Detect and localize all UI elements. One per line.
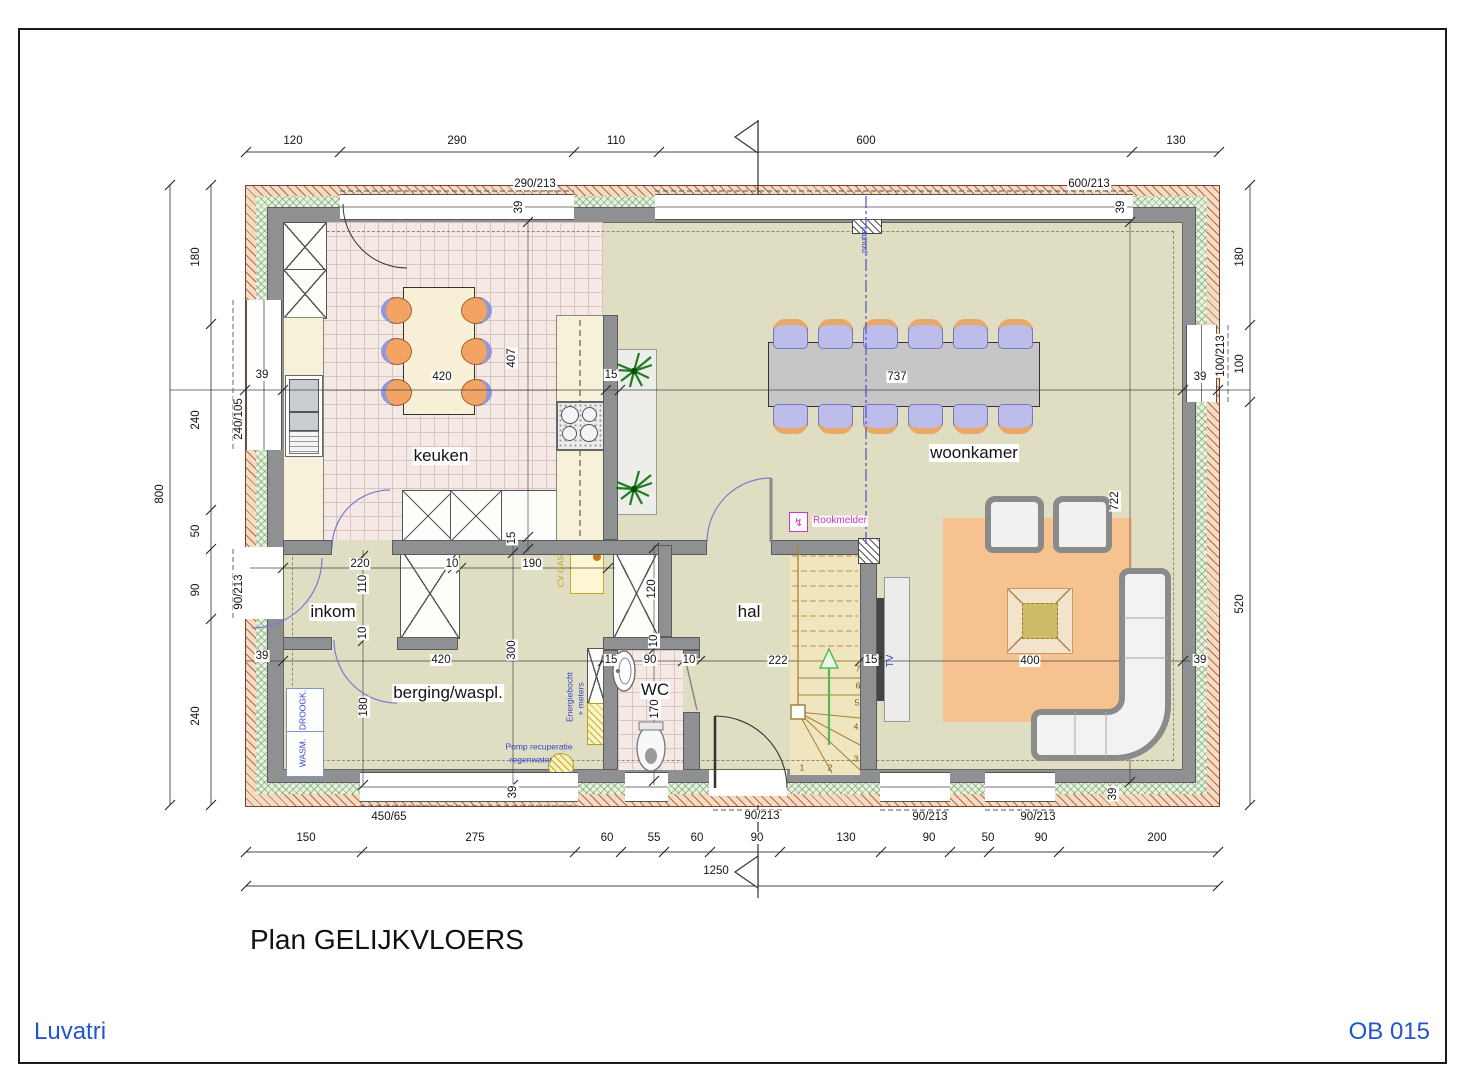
page-title: Plan GELIJKVLOERS xyxy=(250,924,524,956)
stair-step-number: 1 xyxy=(799,764,806,773)
floor-plan-sheet: ↯ xyxy=(0,0,1463,1080)
stair-step-number: 5 xyxy=(854,699,861,708)
stair-numbers-layer: 7654321 xyxy=(0,0,1463,1080)
stair-step-number: 4 xyxy=(853,723,860,732)
stair-step-number: 2 xyxy=(827,764,834,773)
stair-step-number: 3 xyxy=(853,755,860,764)
stair-step-number: 7 xyxy=(855,665,862,674)
stair-step-number: 6 xyxy=(855,682,862,691)
sheet-number: OB 015 xyxy=(1295,1018,1430,1046)
company-name: Luvatri xyxy=(34,1018,106,1046)
